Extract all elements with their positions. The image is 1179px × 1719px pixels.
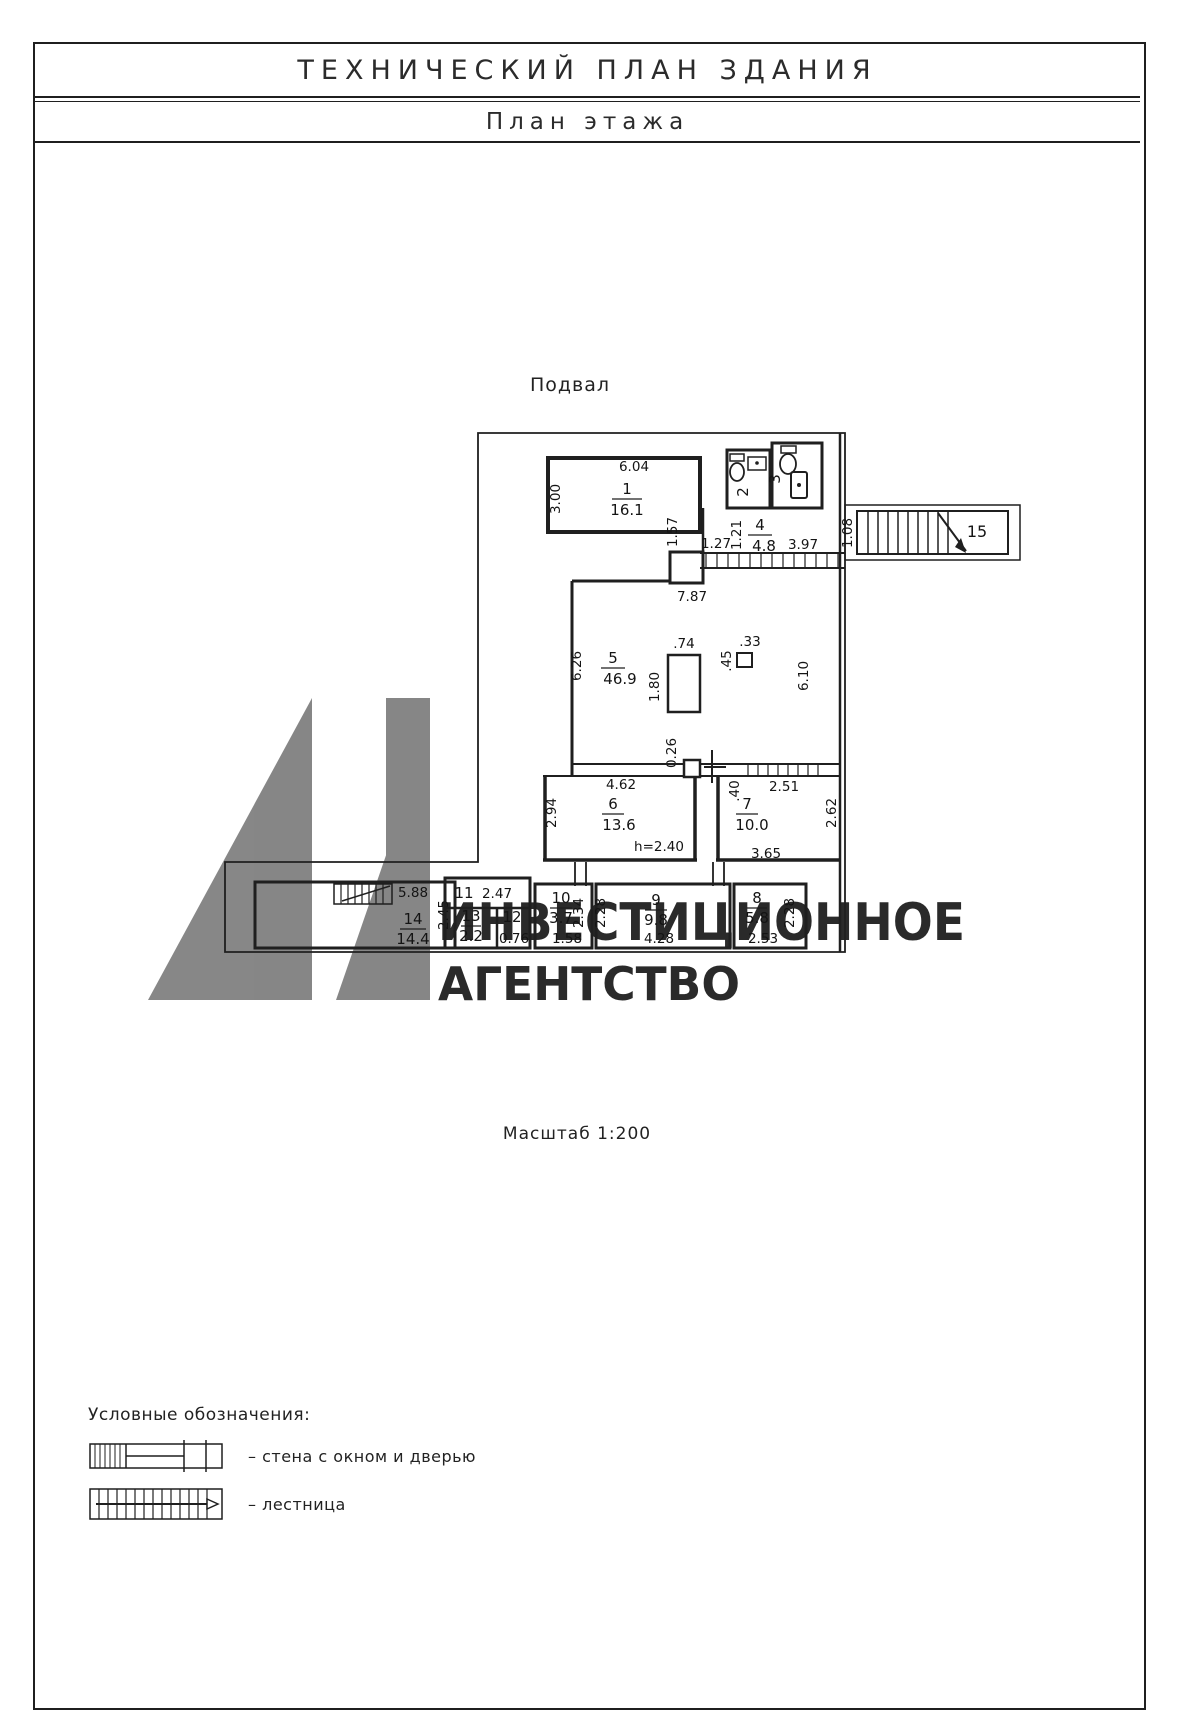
watermark-logo	[148, 698, 430, 1000]
room-8-number: 8	[752, 889, 762, 907]
dim-pier-depth: .45	[719, 650, 735, 671]
dim-hall-right: 3.97	[788, 537, 818, 553]
legend-item-wall: – стена с окном и дверью	[88, 1439, 476, 1473]
dim-room11-width: 2.47	[482, 886, 512, 902]
staircase-icon	[88, 1487, 224, 1521]
dim-room8-width: 2.53	[748, 931, 778, 947]
watermark: ИНВЕСТИЦИОННОЕ АГЕНТСТВО	[148, 698, 965, 1011]
small-pier	[737, 653, 752, 667]
legend-item-stairs: – лестница	[88, 1487, 476, 1521]
dim-room1-width: 6.04	[619, 459, 649, 475]
room-1-area: 16.1	[610, 501, 643, 519]
stair-treads-hatch	[868, 511, 948, 554]
dim-room14-width: 5.88	[398, 885, 428, 901]
column	[668, 655, 700, 712]
room-7-area: 10.0	[735, 816, 768, 834]
room-4-area: 4.8	[752, 537, 776, 555]
dim-room9-width: 4.28	[644, 931, 674, 947]
room-10-number: 10	[551, 889, 570, 907]
sink-drain-icon	[755, 461, 759, 465]
toilet-tank-icon	[781, 446, 796, 453]
dim-room10-depth: 2.34	[571, 898, 587, 928]
dim-room5-right: 6.10	[796, 661, 812, 691]
legend: Условные обозначения: – стена с окном и …	[88, 1405, 476, 1535]
room-14-number: 14	[403, 910, 422, 928]
wall-window-door-icon	[88, 1439, 224, 1473]
dim-room8-depth: 2.28	[782, 898, 798, 928]
dim-room10-width: 1.58	[552, 931, 582, 947]
room-6: 4.62 2.94 6 13.6 h=2.40	[543, 776, 697, 860]
room-4-number: 4	[755, 516, 765, 534]
dim-room7-width: 3.65	[751, 846, 781, 862]
door-openings	[575, 862, 724, 886]
room-7: .40 2.51 7 10.0 2.62 3.65	[716, 776, 840, 862]
watermark-logo-triangle-left	[148, 698, 312, 1000]
stair-arrowhead-icon	[955, 538, 966, 553]
room-6-area: 13.6	[602, 816, 635, 834]
room-5: 7.87 6.26 5 46.9 .74 1.80 .45 .33 6.10 0…	[569, 552, 812, 776]
plan-outer-boundary	[225, 433, 845, 952]
room-15-number: 15	[967, 522, 987, 541]
dim-room7-depth: 2.62	[824, 798, 840, 828]
room-2-number: 2	[734, 487, 752, 497]
dim-column-width: .74	[673, 636, 694, 652]
room-3: 3	[766, 443, 822, 508]
dim-room6-width: 4.62	[606, 777, 636, 793]
dim-hall-gap: 1.27	[701, 536, 731, 552]
room-1-number: 1	[622, 480, 632, 498]
dim-room6-depth: 2.94	[544, 798, 560, 828]
dim-stairs-entry: 1.08	[840, 518, 856, 548]
window-wall-hatch	[706, 553, 838, 568]
dim-pier-width: .33	[739, 634, 760, 650]
room-9-area: 9.8	[644, 911, 668, 929]
watermark-text-line2: АГЕНТСТВО	[438, 957, 740, 1011]
room-2: 2	[727, 450, 770, 508]
wall-pier	[670, 552, 703, 583]
dim-room9-left: 2.28	[593, 898, 609, 928]
dim-room5-left: 6.26	[569, 651, 585, 681]
room-5-number: 5	[608, 649, 618, 667]
dim-column-depth: 1.80	[647, 672, 663, 702]
dim-room12-width: 0.76	[499, 931, 529, 947]
room-13-area: 2.2	[459, 927, 483, 945]
room-13-number: 13	[461, 907, 480, 925]
dim-ceiling-height: h=2.40	[634, 839, 684, 855]
legend-item-stairs-label: – лестница	[248, 1495, 346, 1514]
room-8-area: 5.8	[745, 909, 769, 927]
toilet-bowl-icon	[730, 463, 744, 481]
legend-item-wall-label: – стена с окном и дверью	[248, 1447, 476, 1466]
room-10-area: 3.7	[549, 909, 573, 927]
dim-room1-depth: 3.00	[548, 484, 564, 514]
room-6-number: 6	[608, 795, 618, 813]
dim-room7-door: .40	[727, 780, 743, 801]
room-11-number: 11	[454, 884, 473, 902]
door-pier	[684, 760, 700, 777]
dim-room7-window: 2.51	[769, 779, 799, 795]
boiler-dot-icon	[797, 483, 801, 487]
legend-heading: Условные обозначения:	[88, 1405, 476, 1425]
room-14-area: 14.4	[396, 930, 429, 948]
dim-hall-total: 7.87	[677, 589, 707, 605]
room-5-area: 46.9	[603, 670, 636, 688]
staircase-15: 15 1.08	[840, 505, 1020, 560]
toilet-tank-icon	[730, 454, 744, 461]
dim-hall-depth: 1.21	[729, 520, 745, 550]
room-9-number: 9	[651, 891, 661, 909]
arrowhead-icon	[207, 1499, 218, 1509]
room-7-number: 7	[742, 795, 752, 813]
room-12-number: 12	[502, 908, 521, 926]
dim-157: 1.57	[665, 517, 681, 547]
page: ТЕХНИЧЕСКИЙ ПЛАН ЗДАНИЯ План этажа Подва…	[0, 0, 1179, 1719]
window-wall-hatch	[748, 764, 818, 776]
stair-symbol	[334, 884, 392, 904]
room-3-number: 3	[766, 474, 784, 484]
watermark-logo-bar	[386, 698, 430, 1000]
room-4: 1.27 1.57 1.21 4 4.8 3.97	[665, 508, 845, 568]
